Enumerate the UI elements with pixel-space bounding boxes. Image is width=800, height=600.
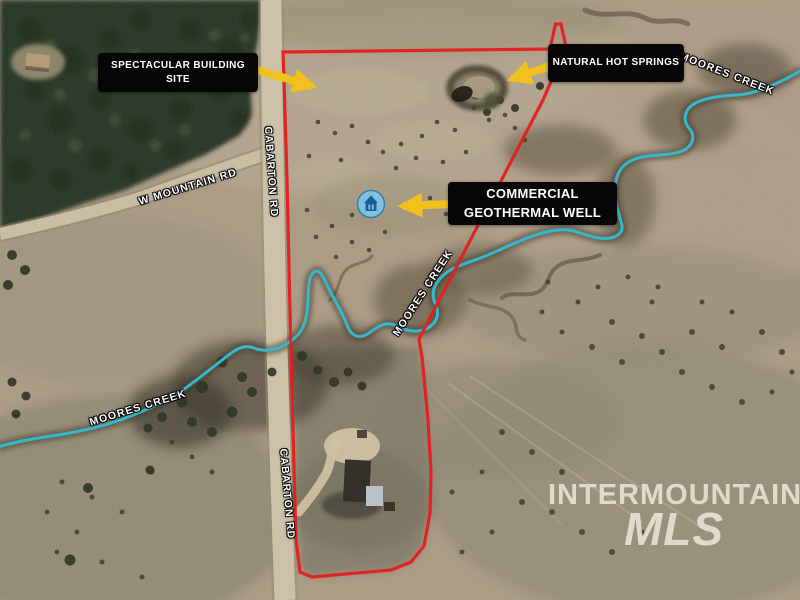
- callout-geothermal-well: COMMERCIAL GEOTHERMAL WELL: [448, 182, 617, 225]
- driveway-turnaround: [324, 428, 380, 464]
- aerial-listing-map: W MOUNTAIN RD CABARTON RD CABARTON RD MO…: [0, 0, 800, 600]
- house-roof: [366, 486, 383, 506]
- callout-building-site-label: SPECTACULAR BUILDING SITE: [102, 59, 254, 86]
- geothermal-well-arrow: [403, 204, 449, 206]
- hot-springs-pond: [447, 66, 507, 110]
- outbuilding: [384, 502, 395, 511]
- callout-hot-springs: NATURAL HOT SPRINGS: [548, 44, 684, 82]
- geothermal-well-icon: [358, 191, 385, 218]
- callout-hot-springs-label: NATURAL HOT SPRINGS: [553, 56, 680, 70]
- callout-building-site: SPECTACULAR BUILDING SITE: [98, 53, 258, 92]
- callout-geothermal-well-label: COMMERCIAL GEOTHERMAL WELL: [460, 185, 605, 223]
